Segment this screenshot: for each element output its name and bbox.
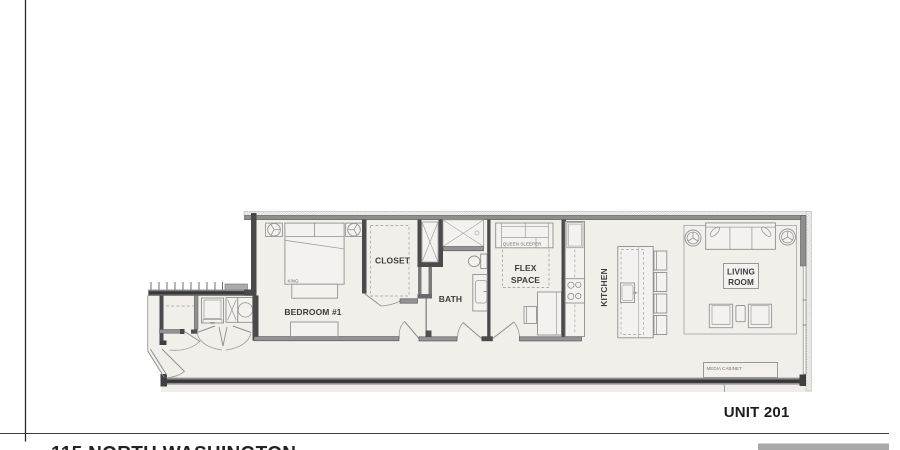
svg-text:LIVING: LIVING xyxy=(727,268,755,277)
svg-text:115 NORTH WASHINGTON: 115 NORTH WASHINGTON xyxy=(51,444,296,450)
svg-text:KING: KING xyxy=(288,279,300,284)
svg-text:BEDROOM #1: BEDROOM #1 xyxy=(284,307,341,317)
svg-text:SPACE: SPACE xyxy=(511,275,540,285)
svg-text:ROOM: ROOM xyxy=(728,278,754,287)
svg-text:MEDIA CABINET: MEDIA CABINET xyxy=(707,366,743,371)
svg-text:BATH: BATH xyxy=(439,294,462,304)
svg-text:CLOSET: CLOSET xyxy=(375,256,411,266)
svg-text:QUEEN SLEEPER: QUEEN SLEEPER xyxy=(503,241,542,246)
svg-text:UNIT 201: UNIT 201 xyxy=(724,404,790,421)
svg-text:FLEX: FLEX xyxy=(514,263,536,273)
svg-text:KITCHEN: KITCHEN xyxy=(599,268,609,306)
